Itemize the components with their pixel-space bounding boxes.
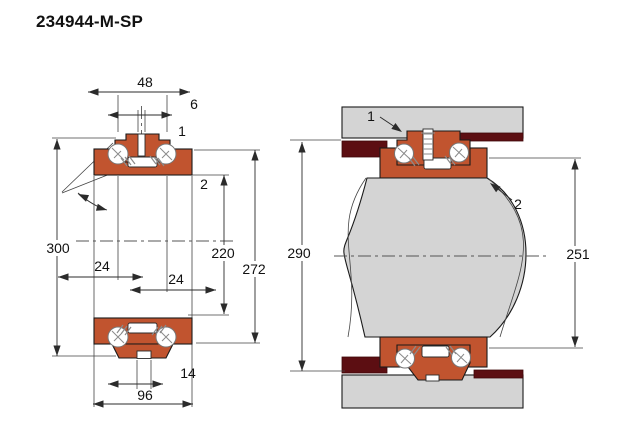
callout-1-right: 1 <box>367 108 375 124</box>
lubrication-slot-upper <box>138 134 145 156</box>
bearing-drawing-svg: 234944-M-SP <box>0 0 640 440</box>
dim-shaft-shoulder-diameter: 251 <box>566 246 590 262</box>
callout-2-right: 2 <box>514 196 522 212</box>
clamp-ring-bottom-right <box>474 370 523 378</box>
dim-outer-diameter: 300 <box>46 240 70 256</box>
dim-bottom-slot: 14 <box>180 365 196 381</box>
dim-housing-shoulder-diameter: 290 <box>287 245 311 261</box>
dim-row-offset-left: 24 <box>94 258 110 274</box>
raceway-gap-lower <box>128 323 157 333</box>
raceway-gap-lower-right <box>422 346 449 357</box>
raceway-gap-upper <box>128 157 157 167</box>
locating-slot-lower <box>137 351 151 359</box>
bearing-lower-mounted <box>380 337 487 381</box>
cross-section-figure: 48 6 1 2 300 24 24 220 272 14 96 <box>41 74 271 408</box>
drawing-title: 234944-M-SP <box>36 12 143 31</box>
callout-1-left: 1 <box>178 123 186 139</box>
shaft-body <box>344 178 526 337</box>
locking-screw <box>421 129 435 160</box>
shaft <box>344 178 526 337</box>
dim-top-width: 48 <box>137 74 153 90</box>
upper-half-section <box>94 134 192 175</box>
dim-bore-diameter: 220 <box>211 245 235 261</box>
dim-row-offset-right: 24 <box>168 271 184 287</box>
technical-drawing-page: 234944-M-SP <box>0 0 640 440</box>
lower-half-section <box>94 318 192 359</box>
dim-washer-outer-diameter: 272 <box>242 261 266 277</box>
dim-top-slot: 6 <box>190 96 198 112</box>
bottom-notch <box>426 375 439 381</box>
dim-overall-width: 96 <box>137 387 153 403</box>
callout-2-left: 2 <box>200 176 208 192</box>
mounted-figure: 1 2 290 251 <box>282 107 595 408</box>
